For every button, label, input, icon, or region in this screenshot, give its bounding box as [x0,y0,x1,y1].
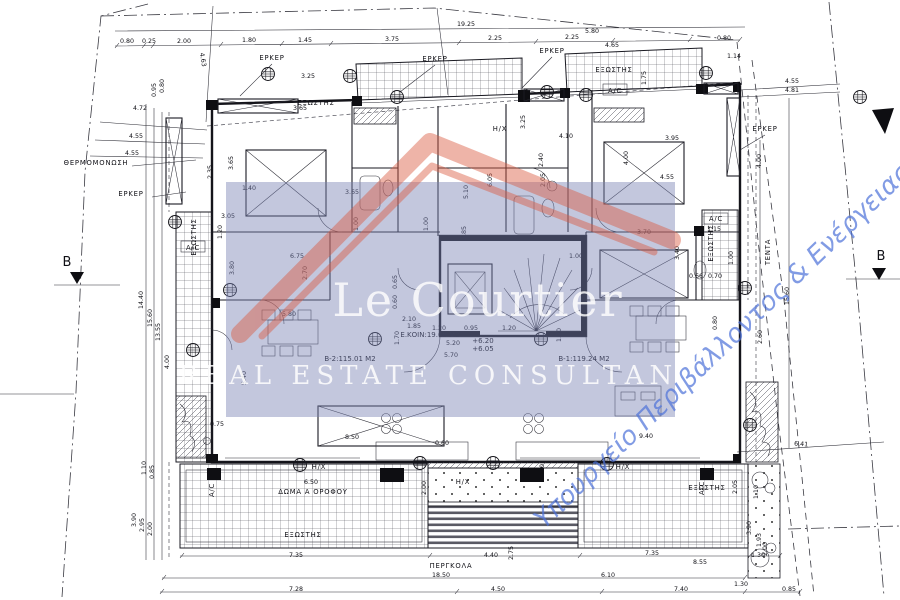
dim-label: 3.25 [301,73,315,80]
dim-label: 1.30 [734,581,748,588]
dim-label: 2.00 [762,542,769,556]
dim-label: 14.40 [138,291,145,309]
plan-label: A/C [186,244,200,252]
dim-label: 2.25 [565,34,579,41]
dim-label: 2.25 [488,35,502,42]
dim-label: 2.75 [508,546,515,560]
dim-label: 4.50 [491,586,505,593]
dim-label: 0.60 [435,440,449,447]
dim-label: 0.80 [712,316,719,330]
floor-plan-page: 19.250.800.252.001.801.453.752.252.255.8… [0,0,900,600]
dim-label: 0.25 [142,38,156,45]
dim-label: 2.00 [421,481,428,495]
dim-label: 1.10 [141,461,148,475]
direction-arrow-icon [872,108,894,134]
plan-label: ΕΞΩΣΤΗΣ [297,99,334,107]
plan-label: ΕΡΚΕΡ [118,190,143,198]
dim-label: 3.75 [385,36,399,43]
plan-label: Η/Χ [456,478,470,486]
plan-label: ΕΞΩΣΤΗΣ [595,66,632,74]
plan-label: ΔΩΜΑ Α ΟΡΟΦΟΥ [278,488,347,496]
dim-label: 4.10 [559,133,573,140]
plan-label: ΘΕΡΜΟΜΟΝΩΣΗ [64,159,129,167]
dim-label: 3.90 [746,521,753,535]
dim-label: 4.55 [129,133,143,140]
dim-label: 7.35 [645,550,659,557]
dim-label: 19.25 [457,21,475,28]
plan-label: Η/Χ [493,125,507,133]
dim-label: 6.50 [304,479,318,486]
dim-label: 8.50 [345,434,359,441]
plan-label: ΠΕΡΓΚΟΛΑ [430,562,473,570]
dim-label: 4.65 [605,42,619,49]
dim-label: 1.75 [641,71,648,85]
plan-label: A/C [709,215,723,223]
dim-label: 18.50 [432,572,450,579]
dim-label: 7.28 [289,586,303,593]
watermark-title: Le Courtier [332,273,623,327]
dim-label: 2.40 [538,153,545,167]
dim-label: 2.35 [207,165,214,179]
plan-label: ΕΞΩΣΤΗΣ [707,224,715,261]
plan-label: ΕΡΚΕΡ [422,55,447,63]
dim-label: 7.35 [289,552,303,559]
plan-label: ΕΞΩΣΤΗΣ [284,531,321,539]
dim-label: 13.55 [155,323,162,341]
dim-label: 4.55 [125,150,139,157]
dim-label: 0.80 [120,38,134,45]
dim-label: 6.10 [601,572,615,579]
dim-label: 2.00 [147,522,154,536]
planter-plants [746,382,778,462]
plan-label: A/C [208,483,216,497]
floor-plan-canvas: 19.250.800.252.001.801.453.752.252.255.8… [0,0,900,600]
dim-label: 6.41 [794,441,808,449]
dim-label: 1.14 [727,53,741,60]
dim-label: 1.00 [728,251,735,265]
dim-label: 2.00 [177,38,191,45]
dim-label: 0.85 [782,586,796,593]
dim-label: 7.40 [674,586,688,593]
dim-label: 0.70 [708,273,722,280]
dim-label: 2.95 [139,518,146,532]
dim-label: 0.85 [149,465,156,479]
dim-label: 4.81 [785,87,799,94]
dim-label: 0.80 [717,35,731,42]
plan-label: B [877,249,886,264]
dim-label: 4.72 [133,105,147,112]
dim-label: 3.25 [520,115,527,129]
dim-label: 4.00 [756,154,763,168]
plan-label: Η/Χ [312,463,326,471]
dim-label: 1.10 [753,485,760,499]
kitchen-counters [376,414,608,461]
balcony-top-right [565,48,702,92]
dim-label: 0.75 [210,421,224,428]
dim-label: 1.80 [242,37,256,44]
plan-label: ΕΞΩΣΤΗΣ [688,484,725,492]
plan-label: ΕΡΚΕΡ [752,125,777,133]
dim-label: 1.45 [298,37,312,44]
plan-label: A/C [608,87,622,95]
dim-label: 3.95 [665,135,679,142]
plan-label: A/C [698,481,706,495]
dim-label: 3.65 [228,156,235,170]
dim-label: 1.20 [217,225,224,239]
dim-label: 2.05 [732,480,739,494]
dim-label: 4.00 [623,151,630,165]
dim-label: 4.00 [164,355,171,369]
dim-label: 4.55 [785,78,799,85]
dim-label: 4.55 [660,174,674,181]
balcony-top-left [356,58,522,100]
plan-label: ΤΕΝΤΑ [764,239,772,266]
dim-label: 15.60 [147,309,154,327]
dim-label: 4.63 [198,52,207,67]
plan-label: B [63,255,72,270]
plan-label: ΕΡΚΕΡ [259,54,284,62]
plan-label: ΕΡΚΕΡ [539,47,564,55]
dim-label: 0.90 [539,464,546,478]
dim-label: 3.90 [131,513,138,527]
dim-label: 8.55 [693,559,707,566]
dim-label: 4.40 [484,552,498,559]
dim-label: 0.95 [151,83,158,97]
dim-label: 5.80 [585,28,599,35]
dim-label: 0.66 [689,273,703,280]
dim-label: 0.80 [159,79,166,93]
watermark-subtitle: REAL ESTATE CONSULTANTS [179,361,726,391]
